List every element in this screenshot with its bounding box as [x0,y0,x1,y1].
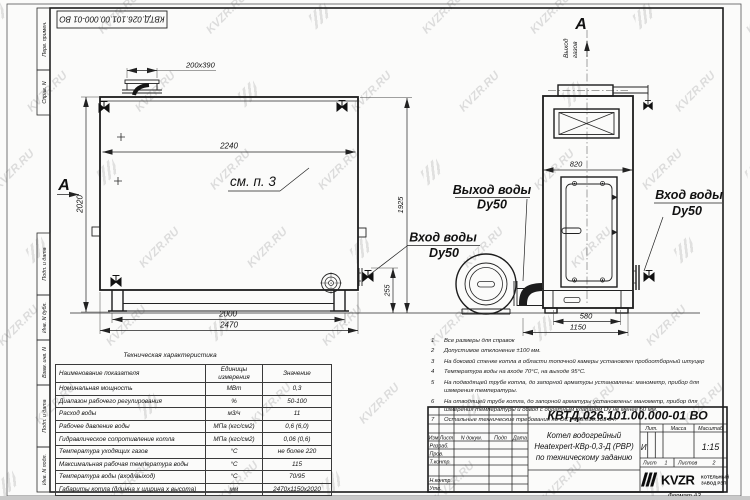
cell-value: 11 [263,408,332,421]
cell-value: не более 220 [263,445,332,458]
scale-value: 1:15 [702,442,721,452]
cell-units: °С [206,445,263,458]
top-stamp: КВТД.026.101.00.000-01 ВО [57,11,167,28]
cell-value: 50-100 [263,395,332,408]
note-text: На боковой стенке котла в области топочн… [444,358,704,366]
kvzr-logo-text: KVZR [661,473,696,488]
section-a-top: А [574,16,587,33]
dim-2240: 2240 [103,142,356,153]
cell-name: Температура воды (вход/выход) [56,471,206,484]
row-prov: Пров. [430,452,444,458]
margin-label-inv-podl: Инв. N подл. [42,454,48,485]
sheet-label: Лист [642,461,657,467]
cell-name: Максимальная рабочая температура воды [56,458,206,471]
dim-2000-label: 2000 [218,310,237,319]
rev-header-izm: Изм [429,436,439,442]
margin-label-sprav-n: Справ. N [42,81,48,103]
dim-820: 820 [544,160,633,171]
margin-label-perv-primen: Перв. примен. [42,21,48,56]
water-inlet-left-text: Вход воды [409,231,477,245]
notes-list: 1Все размеры для справок 2Допустимое отк… [431,337,721,427]
note-number: 3 [431,358,444,366]
kvzr-logo-sub1: КОТЕЛЬНЫЙ [701,475,729,480]
cell-value: 70/95 [263,471,332,484]
gas-outlet-line1: Выход [562,38,570,58]
dim-stub-label: 200х390 [185,61,216,70]
section-a-left-label: А [57,177,70,194]
note-number: 6 [431,398,444,415]
title-line3: по техническому заданию [536,453,632,462]
see-note-label: см. п. 3 [230,174,276,189]
title-line1: Котел водогрейный [547,431,622,440]
front-inlet-valve [633,265,654,290]
dim-580-label: 580 [580,312,593,321]
cell-name: Гидравлическое сопротивление котла [56,433,206,446]
water-inlet-left-label: Вход воды Dy50 [368,231,480,277]
note-number: 2 [431,347,444,355]
dim-2020: 2020 [76,97,111,312]
kvzr-logo-icon [641,473,657,487]
title-line2: Heatexpert-КВр-0,3-Д (РВР) [534,442,634,451]
door-handle [562,228,581,234]
dim-1150: 1150 [523,313,628,336]
rev-header-podp: Подп [494,436,507,442]
water-outlet-dn: Dy50 [477,198,507,212]
note-item: 1Все размеры для справок [431,337,721,345]
mass-header: Масса [671,426,687,432]
water-inlet-right-dn: Dy50 [672,204,702,218]
note-text: На подводящей трубе котла, до запорной а… [444,379,721,396]
tech-table-header-row: Наименование показателя Единицы измерени… [56,365,332,383]
table-row: Максимальная рабочая температура воды°С1… [56,458,332,471]
table-row: Гидравлическое сопротивление котлаМПа (к… [56,433,332,446]
drawing-sheet: KVZR.RUKVZR.RUKVZR.RUKVZR.RUKVZR.RUKVZR.… [0,0,750,500]
cell-value: 0,6 (6,0) [263,420,332,433]
note-number: 4 [431,368,444,376]
col-header-units: Единицы измерения [206,365,263,383]
cell-name: Диапазон рабочего регулирования [56,395,206,408]
note-item: 5На подводящей трубе котла, до запорной … [431,379,721,396]
base-skids [108,290,349,311]
sheets-label: Листов [677,461,698,467]
table-row: Температура воды (вход/выход)°С70/95 [56,471,332,484]
lit-header: Лит. [644,426,657,432]
table-row: Номинальная мощностьМВт0,3 [56,383,332,396]
sheet-bottom-edge [0,496,750,500]
margin-label-inv-dubl: Инв. N дубл. [42,302,48,333]
margin-label-podp-data-1: Подп. и дата [42,247,48,280]
margin-label-podp-data-2: Подп. и дата [42,399,48,432]
burner-fan [456,254,543,314]
row-tkontr: Т.контр. [430,460,451,466]
cell-name: Рабочее давление воды [56,420,206,433]
cell-value: 2470х1150х2020 [263,483,332,496]
table-row: Рабочее давление водыМПа (кгс/см2)0,6 (6… [56,420,332,433]
row-razrab: Разраб. [430,444,449,450]
col-header-value: Значение [263,365,332,383]
rev-header-data: Дата [512,436,527,442]
front-view: А Выход газов 820 [456,16,654,336]
tech-table-title: Техническая характеристика [55,352,285,364]
water-outlet-text: Выход воды [453,183,532,197]
note-item: 3На боковой стенке котла в области топоч… [431,358,721,366]
dim-580: 580 [554,310,621,325]
note-text: На отводящей трубе котла, до запорной ар… [444,398,721,415]
fan-duct-elbow [519,283,542,305]
kvzr-logo-sub2: ЗАВОД РЭП [701,481,726,486]
gas-outlet-line2: газов [572,41,579,58]
tech-table: Наименование показателя Единицы измерени… [55,364,332,496]
row-nkontr: Н.контр. [430,478,452,484]
cell-units: м3/ч [206,408,263,421]
note-item: 7Остальные технические требования по ОСТ… [431,416,721,424]
note-item: 4Температура воды на входе 70°С, на выхо… [431,368,721,376]
cell-units: °С [206,458,263,471]
technical-characteristics: Техническая характеристика Наименование … [55,352,331,496]
margin-label-vzam-inv: Взам. инв. N [42,347,48,378]
table-row: Расход водым3/ч11 [56,408,332,421]
flue-box [548,85,652,109]
see-note-callout: см. п. 3 [228,168,309,191]
note-item: 2Допустимое отклонение ±100 мм. [431,347,721,355]
cell-value: 0,06 (0,6) [263,433,332,446]
main-view: 200х390 2240 см. п. 3 А 2020 [57,61,700,335]
kvzr-logo: KVZR КОТЕЛЬНЫЙ ЗАВОД РЭП [641,473,729,488]
dim-1150-label: 1150 [570,323,587,332]
explosion-hatch [554,109,619,138]
scale-header: Масштаб [698,426,724,432]
pipe-labels: Выход воды Dy50 Вход воды Dy50 Вход воды… [368,183,723,281]
cell-units: МПа (кгс/см2) [206,420,263,433]
water-inlet-left-dn: Dy50 [429,246,459,260]
dim-2470-label: 2470 [219,321,238,330]
cell-units: мм [206,483,263,496]
cell-value: 115 [263,458,332,471]
note-number: 7 [431,416,444,424]
note-number: 1 [431,337,444,345]
margin-column: Перв. примен. Справ. N Подп. и дата Инв.… [37,8,50,492]
note-text: Все размеры для справок [444,337,515,345]
dim-820-label: 820 [570,160,583,169]
dim-1925-label: 1925 [396,196,405,214]
section-a-left: А [57,177,79,195]
dim-2020-label: 2020 [76,195,85,214]
dim-255: 255 [371,268,398,313]
dim-255-label: 255 [385,285,392,298]
cell-units: МВт [206,383,263,396]
note-text: Температура воды на входе 70°С, на выход… [444,368,586,376]
section-a-top-label: А [574,16,587,33]
col-header-name: Наименование показателя [56,365,206,383]
note-item: 6На отводящей трубе котла, до запорной а… [431,398,721,415]
dim-stub: 200х390 [127,61,216,79]
cell-units: °С [206,471,263,484]
cell-value: 0,3 [263,383,332,396]
rev-header-ndokum: N докум. [461,436,482,442]
table-row: Габариты котла (длинна х ширина х высота… [56,483,332,496]
dim-1925: 1925 [360,98,412,314]
water-inlet-right-text: Вход воды [655,188,723,202]
cell-name: Расход воды [56,408,206,421]
cell-name: Габариты котла (длинна х ширина х высота… [56,483,206,496]
sheets-value: 2 [712,461,716,467]
lit-value: И [641,443,647,452]
note-text: Допустимое отклонение ±100 мм. [444,347,541,355]
note-text: Остальные технические требования по ОСТ … [444,416,617,424]
table-row: Диапазон рабочего регулирования%50-100 [56,395,332,408]
water-inlet-right-label: Вход воды Dy50 [644,188,723,271]
cell-units: МПа (кгс/см2) [206,433,263,446]
sheet-value: 1 [665,461,668,467]
note-number: 5 [431,379,444,396]
valve-symbols [92,101,366,287]
row-utv: Утв. [430,486,442,492]
top-stamp-number: КВТД.026.101.00.000-01 ВО [59,15,165,24]
inlet-valve [358,268,373,286]
gas-outlet-callout: Выход газов [562,38,587,58]
cell-name: Номинальная мощность [56,383,206,396]
cell-name: Температура уходящих газов [56,445,206,458]
lower-section [543,291,633,314]
flue-stub [122,80,162,95]
table-row: Температура уходящих газов°Сне более 220 [56,445,332,458]
rev-header-list: Лист [439,436,454,442]
cell-units: % [206,395,263,408]
dim-2240-label: 2240 [219,142,238,151]
furnace-door [561,177,618,287]
